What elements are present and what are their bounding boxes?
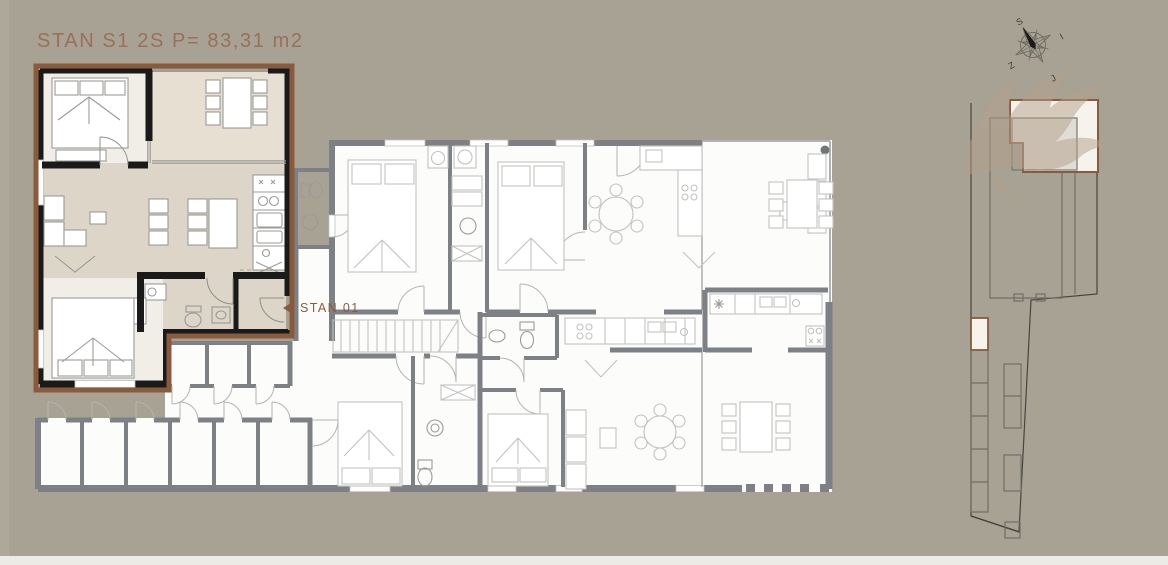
footer-strip [0,556,1168,565]
site-plan [962,68,1110,538]
unit-kitchen [253,175,286,274]
kitchen-bottom-left [565,318,695,344]
unit-label-text: STAN 01 [300,301,360,315]
bedroom-c [338,402,402,486]
terrace-bottom-right [722,402,790,452]
compass-north-label: S [1014,16,1024,28]
column-dot [821,146,830,155]
left-edge-strip [0,0,9,565]
compass-west-label: Z [1007,60,1017,72]
unit-bedroom2 [52,298,146,378]
floor-plan-canvas: S I J Z [0,0,1168,565]
site-highlight-parking[interactable] [971,318,988,350]
bedroom-b [498,162,564,270]
compass-east-label: I [1058,32,1065,42]
compass-rose: S I J Z [990,2,1082,99]
page-title: STAN S1 2S P= 83,31 m2 [37,30,304,53]
floorplan-page: { "header": { "title": "STAN S1 2S P= 83… [0,0,1168,565]
bedroom-d [488,414,548,486]
site-parking [971,318,1021,538]
unit-terrace-table [206,78,267,128]
unit-label-stan-01[interactable]: STAN 01 [283,301,360,315]
left-arrow-icon [283,301,294,315]
